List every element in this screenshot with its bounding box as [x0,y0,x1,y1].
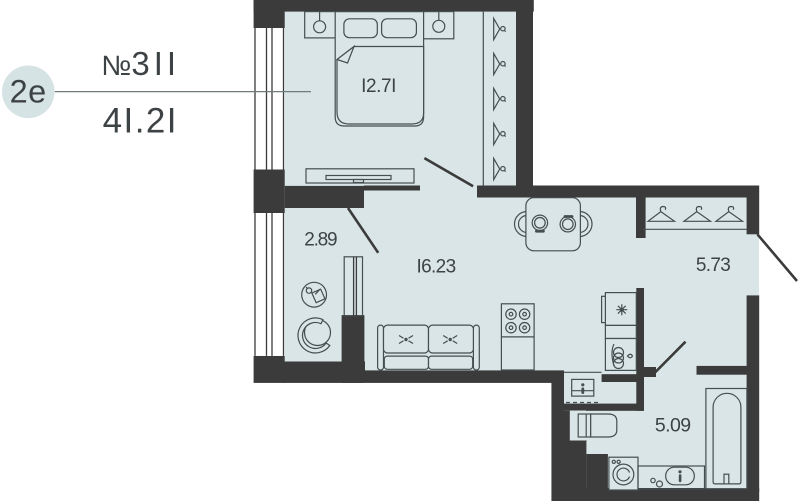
svg-text:5.73: 5.73 [696,255,730,276]
svg-text:5.09: 5.09 [655,415,691,437]
svg-text:4I.2I: 4I.2I [103,102,178,141]
svg-text:I2.7I: I2.7I [361,76,396,97]
svg-text:2е: 2е [10,73,47,109]
svg-text:2.89: 2.89 [304,229,337,250]
svg-text:№3II: №3II [101,45,180,82]
svg-text:I6.23: I6.23 [416,257,455,278]
